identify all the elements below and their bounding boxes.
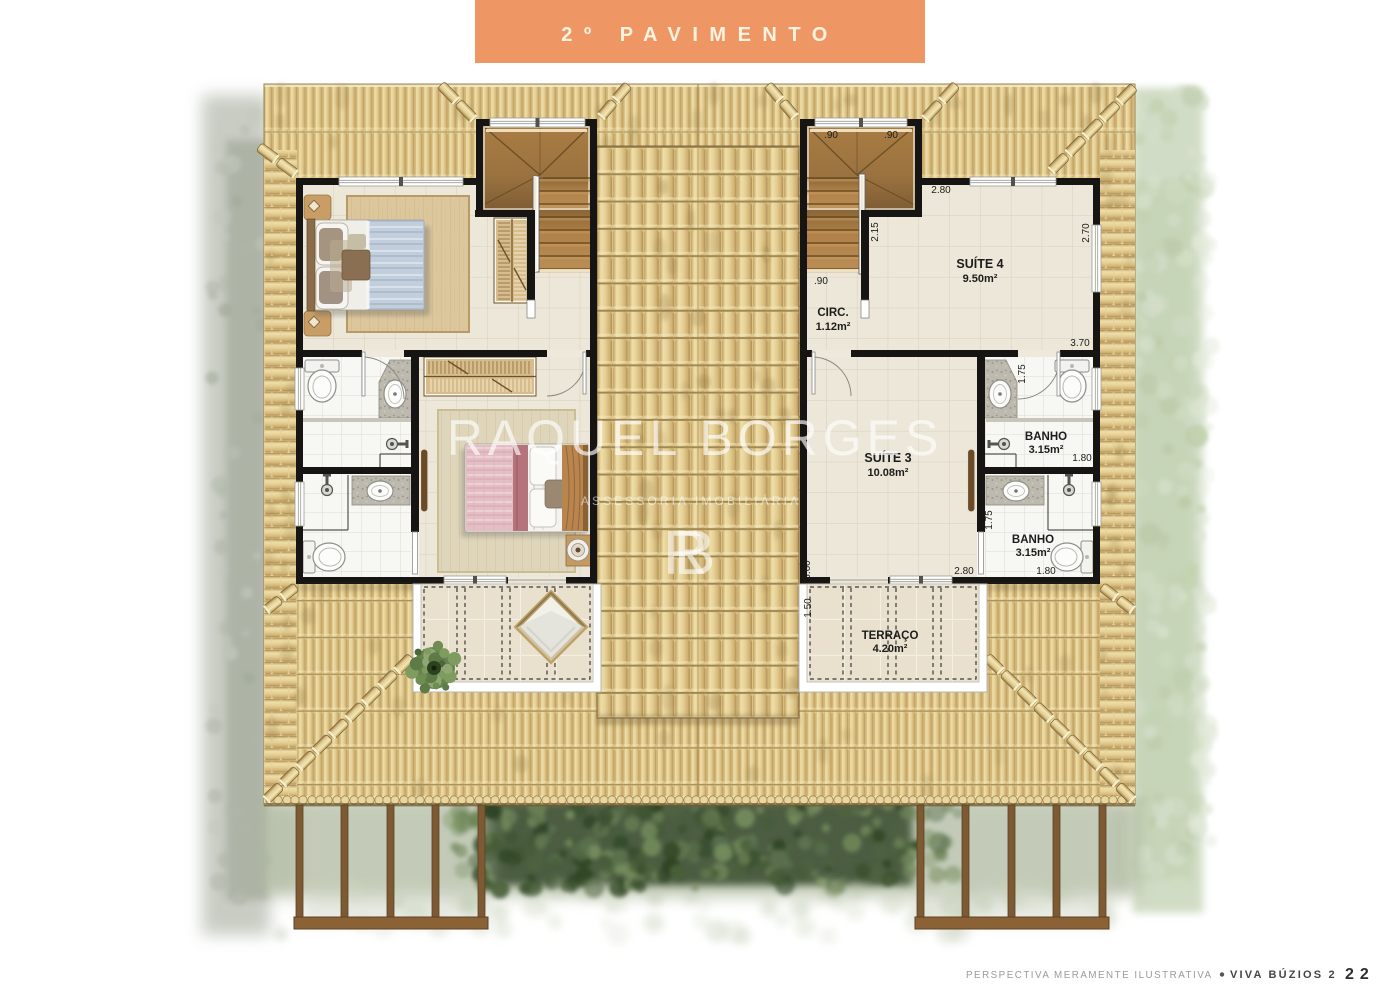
- svg-text:4.20m²: 4.20m²: [873, 643, 908, 655]
- svg-text:B: B: [674, 519, 715, 588]
- svg-text:1.12m²: 1.12m²: [816, 321, 851, 333]
- svg-text:10.08m²: 10.08m²: [868, 467, 909, 479]
- svg-text:2.70: 2.70: [1081, 223, 1092, 243]
- svg-text:1.80: 1.80: [1036, 566, 1056, 577]
- svg-text:BANHO: BANHO: [1025, 431, 1067, 443]
- svg-text:9.50m²: 9.50m²: [963, 273, 998, 285]
- svg-text:ASSESSORIA IMOBILIÁRIA: ASSESSORIA IMOBILIÁRIA: [581, 493, 801, 508]
- svg-text:RAQUEL BORGES: RAQUEL BORGES: [447, 410, 944, 466]
- svg-text:3.60: 3.60: [802, 560, 813, 580]
- svg-text:1.50: 1.50: [803, 598, 814, 618]
- svg-text:PERSPECTIVA MERAMENTE ILUSTRAT: PERSPECTIVA MERAMENTE ILUSTRATIVA: [966, 970, 1213, 981]
- svg-text:VIVA BÚZIOS 2: VIVA BÚZIOS 2: [1230, 968, 1337, 981]
- svg-text:SUÍTE 4: SUÍTE 4: [956, 256, 1003, 271]
- svg-text:2.80: 2.80: [931, 185, 951, 196]
- svg-text:2º PAVIMENTO: 2º PAVIMENTO: [561, 24, 839, 46]
- svg-text:2.80: 2.80: [954, 566, 974, 577]
- svg-text:3.15m²: 3.15m²: [1029, 444, 1064, 456]
- svg-text:.90: .90: [884, 130, 898, 141]
- svg-text:2.15: 2.15: [870, 222, 881, 242]
- svg-text:1.75: 1.75: [984, 510, 995, 530]
- svg-text:22: 22: [1345, 966, 1375, 983]
- svg-text:TERRAÇO: TERRAÇO: [862, 630, 919, 642]
- svg-text:3.15m²: 3.15m²: [1016, 547, 1051, 559]
- svg-text:BANHO: BANHO: [1012, 534, 1054, 546]
- svg-text:CIRC.: CIRC.: [817, 307, 848, 319]
- svg-text:.90: .90: [814, 276, 828, 287]
- svg-text:3.70: 3.70: [1070, 338, 1090, 349]
- svg-text:1.80: 1.80: [1072, 453, 1092, 464]
- svg-text:.90: .90: [824, 130, 838, 141]
- svg-text:1.75: 1.75: [1017, 364, 1028, 384]
